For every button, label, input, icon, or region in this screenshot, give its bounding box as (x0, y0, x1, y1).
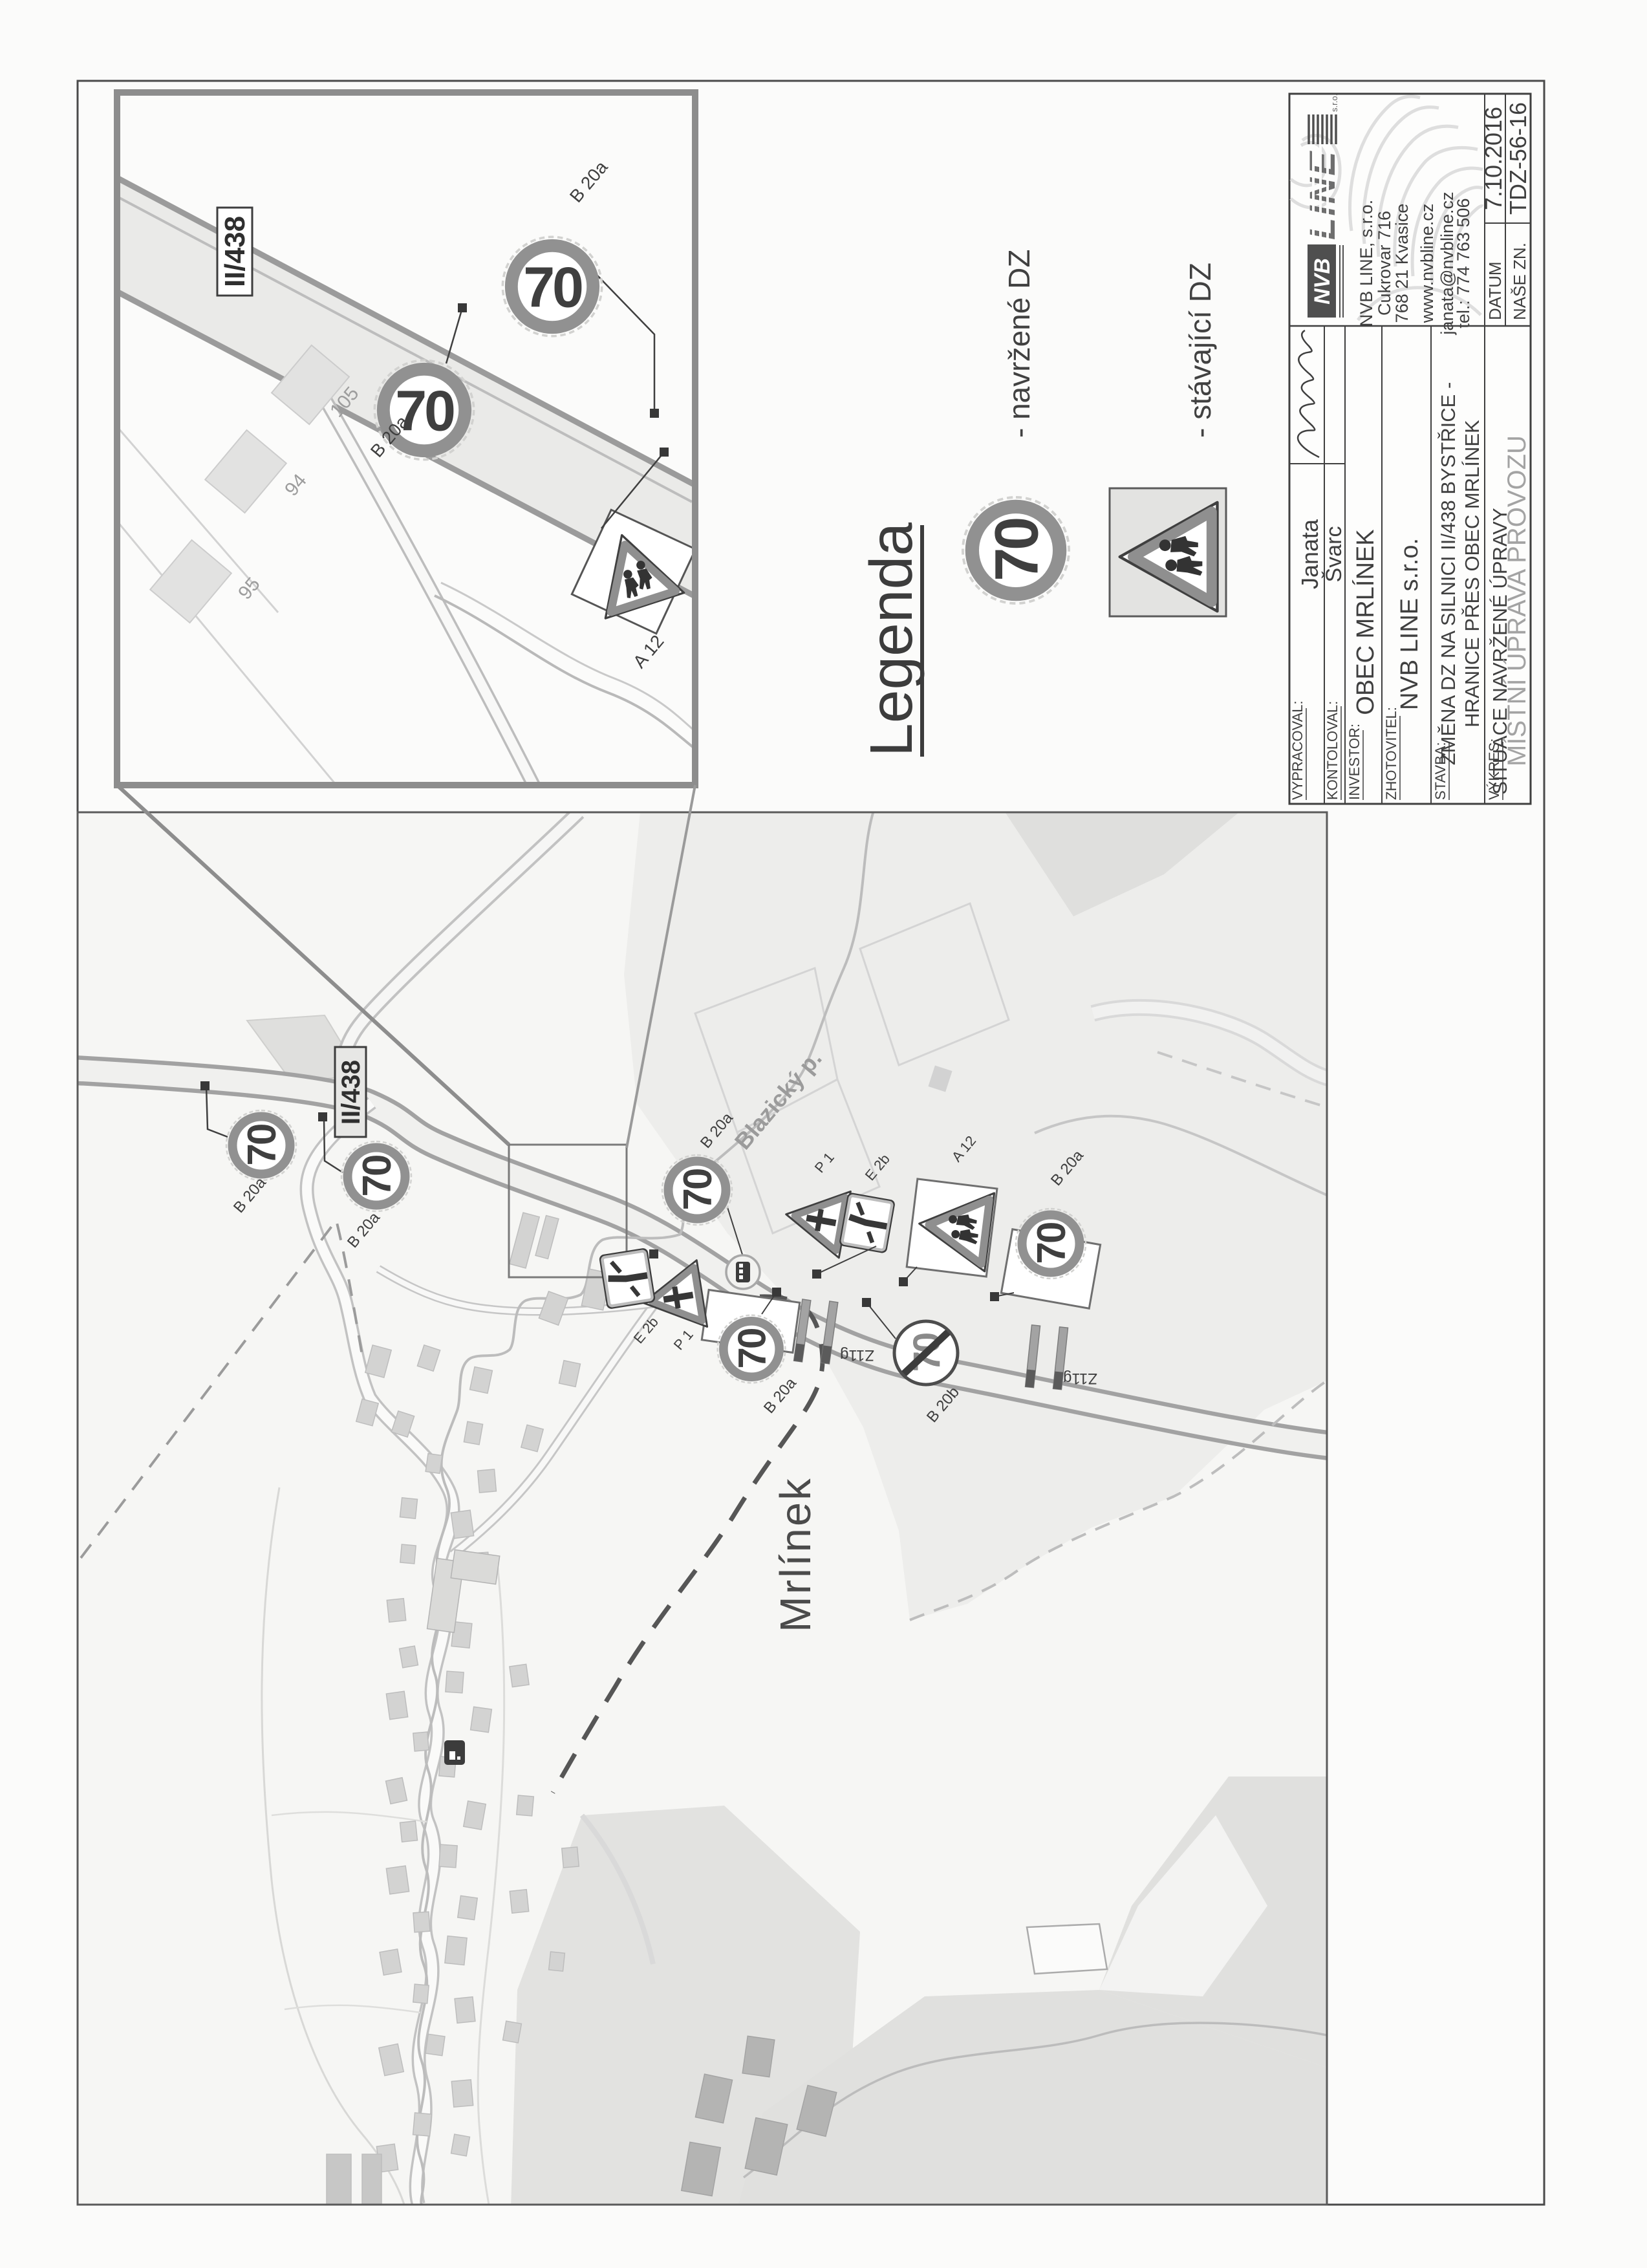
svg-text:INVESTOR:: INVESTOR: (1346, 724, 1362, 800)
svg-text:Mrlínek: Mrlínek (771, 1476, 820, 1632)
svg-text:www.nvbline.cz: www.nvbline.cz (1417, 204, 1437, 324)
svg-text:NVB LINE s.r.o.: NVB LINE s.r.o. (1396, 538, 1423, 710)
svg-text:ZMĚNA DZ NA SILNICI II/438 BYS: ZMĚNA DZ NA SILNICI II/438 BYSTŘICE - (1437, 382, 1459, 766)
svg-text:HRANICE PŘES OBEC MRLÍNEK: HRANICE PŘES OBEC MRLÍNEK (1461, 420, 1483, 728)
svg-text:s.r.o.: s.r.o. (1329, 94, 1339, 112)
svg-text:Z11g: Z11g (840, 1346, 874, 1364)
svg-text:II/438: II/438 (219, 216, 251, 287)
svg-text:NAŠE ZN.: NAŠE ZN. (1510, 243, 1529, 320)
svg-text:ZHOTOVITEL:: ZHOTOVITEL: (1383, 707, 1399, 800)
svg-text:NVB LINE, s.r.o.: NVB LINE, s.r.o. (1357, 200, 1376, 327)
svg-text:Legenda: Legenda (857, 523, 925, 757)
svg-text:Janata: Janata (1297, 519, 1323, 589)
svg-text:LINE: LINE (1302, 149, 1342, 240)
svg-text:- stávající DZ: - stávající DZ (1183, 263, 1217, 438)
svg-text:II/438: II/438 (337, 1060, 365, 1125)
svg-text:768 21 Kvasice: 768 21 Kvasice (1392, 204, 1412, 323)
svg-text:Cukrovar 716: Cukrovar 716 (1375, 211, 1394, 316)
svg-text:- navržené DZ: - navržené DZ (1002, 250, 1036, 438)
svg-text:tel.: 774 763 506: tel.: 774 763 506 (1454, 198, 1473, 328)
svg-text:MÍSTNÍ ÚPRAVA PROVOZU: MÍSTNÍ ÚPRAVA PROVOZU (1502, 435, 1531, 766)
svg-text:DATUM: DATUM (1485, 261, 1505, 320)
svg-text:NVB: NVB (1310, 258, 1335, 305)
svg-text:Z11g: Z11g (1063, 1370, 1097, 1387)
svg-text:Švarc: Švarc (1322, 526, 1346, 583)
svg-text:OBEC MRLÍNEK: OBEC MRLÍNEK (1351, 529, 1379, 715)
svg-text:KONTOLOVAL:: KONTOLOVAL: (1324, 701, 1340, 800)
svg-text:VYPRACOVAL:: VYPRACOVAL: (1289, 700, 1306, 800)
svg-text:TDZ-56-16: TDZ-56-16 (1505, 102, 1531, 215)
svg-text:7.10.2016: 7.10.2016 (1480, 107, 1507, 210)
